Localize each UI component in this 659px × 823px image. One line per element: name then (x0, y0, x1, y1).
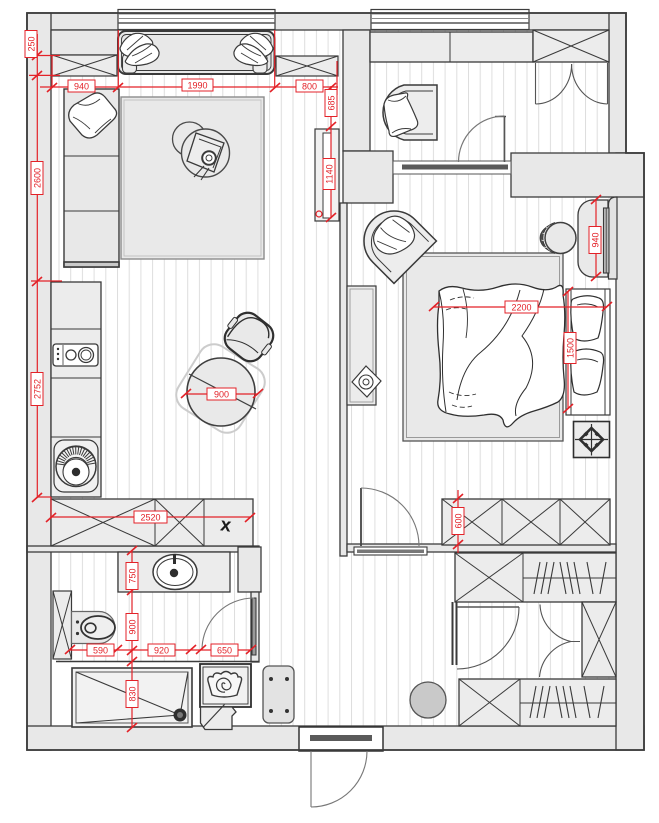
svg-text:1500: 1500 (566, 338, 576, 358)
svg-text:900: 900 (214, 390, 229, 400)
svg-text:830: 830 (128, 686, 138, 701)
svg-text:685: 685 (327, 95, 337, 110)
svg-text:2200: 2200 (511, 303, 531, 313)
svg-text:940: 940 (74, 82, 89, 92)
svg-text:2752: 2752 (33, 379, 43, 399)
svg-text:590: 590 (93, 646, 108, 656)
svg-text:920: 920 (154, 646, 169, 656)
svg-text:600: 600 (454, 513, 464, 528)
svg-text:900: 900 (128, 619, 138, 634)
svg-text:2520: 2520 (140, 513, 160, 523)
svg-text:2600: 2600 (33, 168, 43, 188)
svg-text:1140: 1140 (325, 164, 335, 183)
svg-text:750: 750 (128, 568, 138, 583)
svg-text:650: 650 (217, 646, 232, 656)
svg-text:1990: 1990 (187, 81, 207, 91)
svg-text:250: 250 (27, 36, 37, 51)
svg-text:800: 800 (302, 82, 317, 92)
svg-text:940: 940 (591, 232, 601, 247)
